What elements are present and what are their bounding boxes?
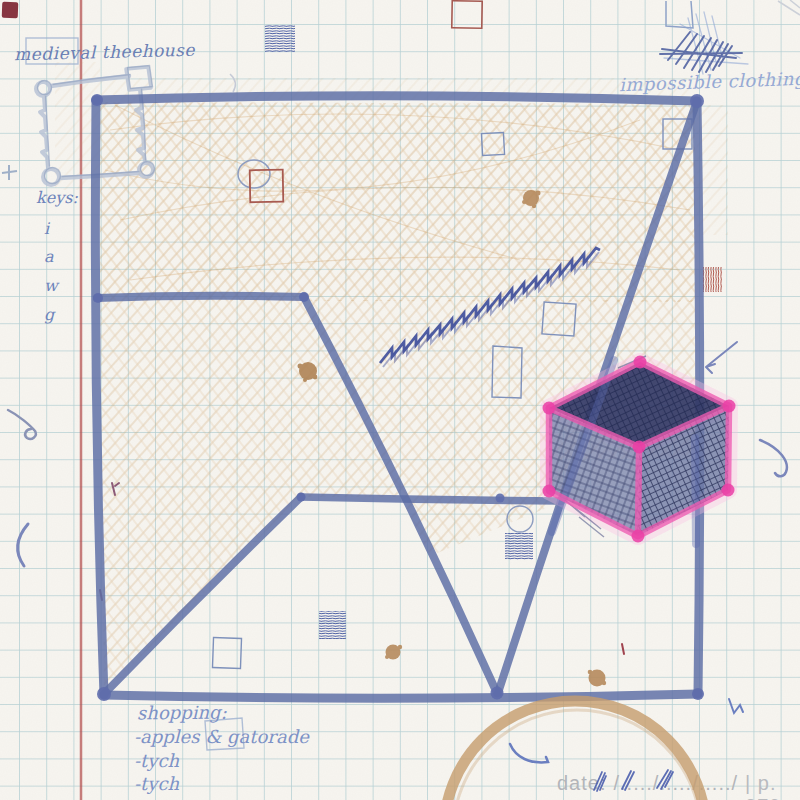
shopping-item: -apples & gatorade xyxy=(134,726,309,747)
inner-horizontal-2 xyxy=(301,497,561,501)
scribble-square-bottom xyxy=(319,611,346,639)
date-label: date: xyxy=(557,772,606,800)
inner-horizontal-1 xyxy=(97,296,304,298)
square-top-edge xyxy=(96,96,697,101)
notebook-page: medieval theehouse impossible clothing k… xyxy=(0,0,800,800)
scribble-square-top xyxy=(265,25,295,52)
sketch-canvas xyxy=(0,0,800,800)
keys-label: keys: xyxy=(36,188,78,207)
key-item: g xyxy=(44,305,54,324)
key-item: a xyxy=(44,247,54,266)
key-item: w xyxy=(44,276,58,295)
key-item: i xyxy=(44,219,49,238)
scribble-square-mid xyxy=(505,533,533,560)
shopping-item: -tych xyxy=(134,750,179,771)
date-line: date: /...../...../...../ | p. 879 xyxy=(557,772,800,800)
page-ref: | p. 879 xyxy=(745,772,800,800)
red-scribble-square xyxy=(703,267,722,292)
date-dots: /...../...../...../ xyxy=(613,772,738,800)
shopping-header: shopping: xyxy=(137,702,227,724)
square-bottom-edge xyxy=(104,694,698,698)
corner-red-square xyxy=(2,2,19,19)
shopping-item: -tych xyxy=(134,773,179,794)
